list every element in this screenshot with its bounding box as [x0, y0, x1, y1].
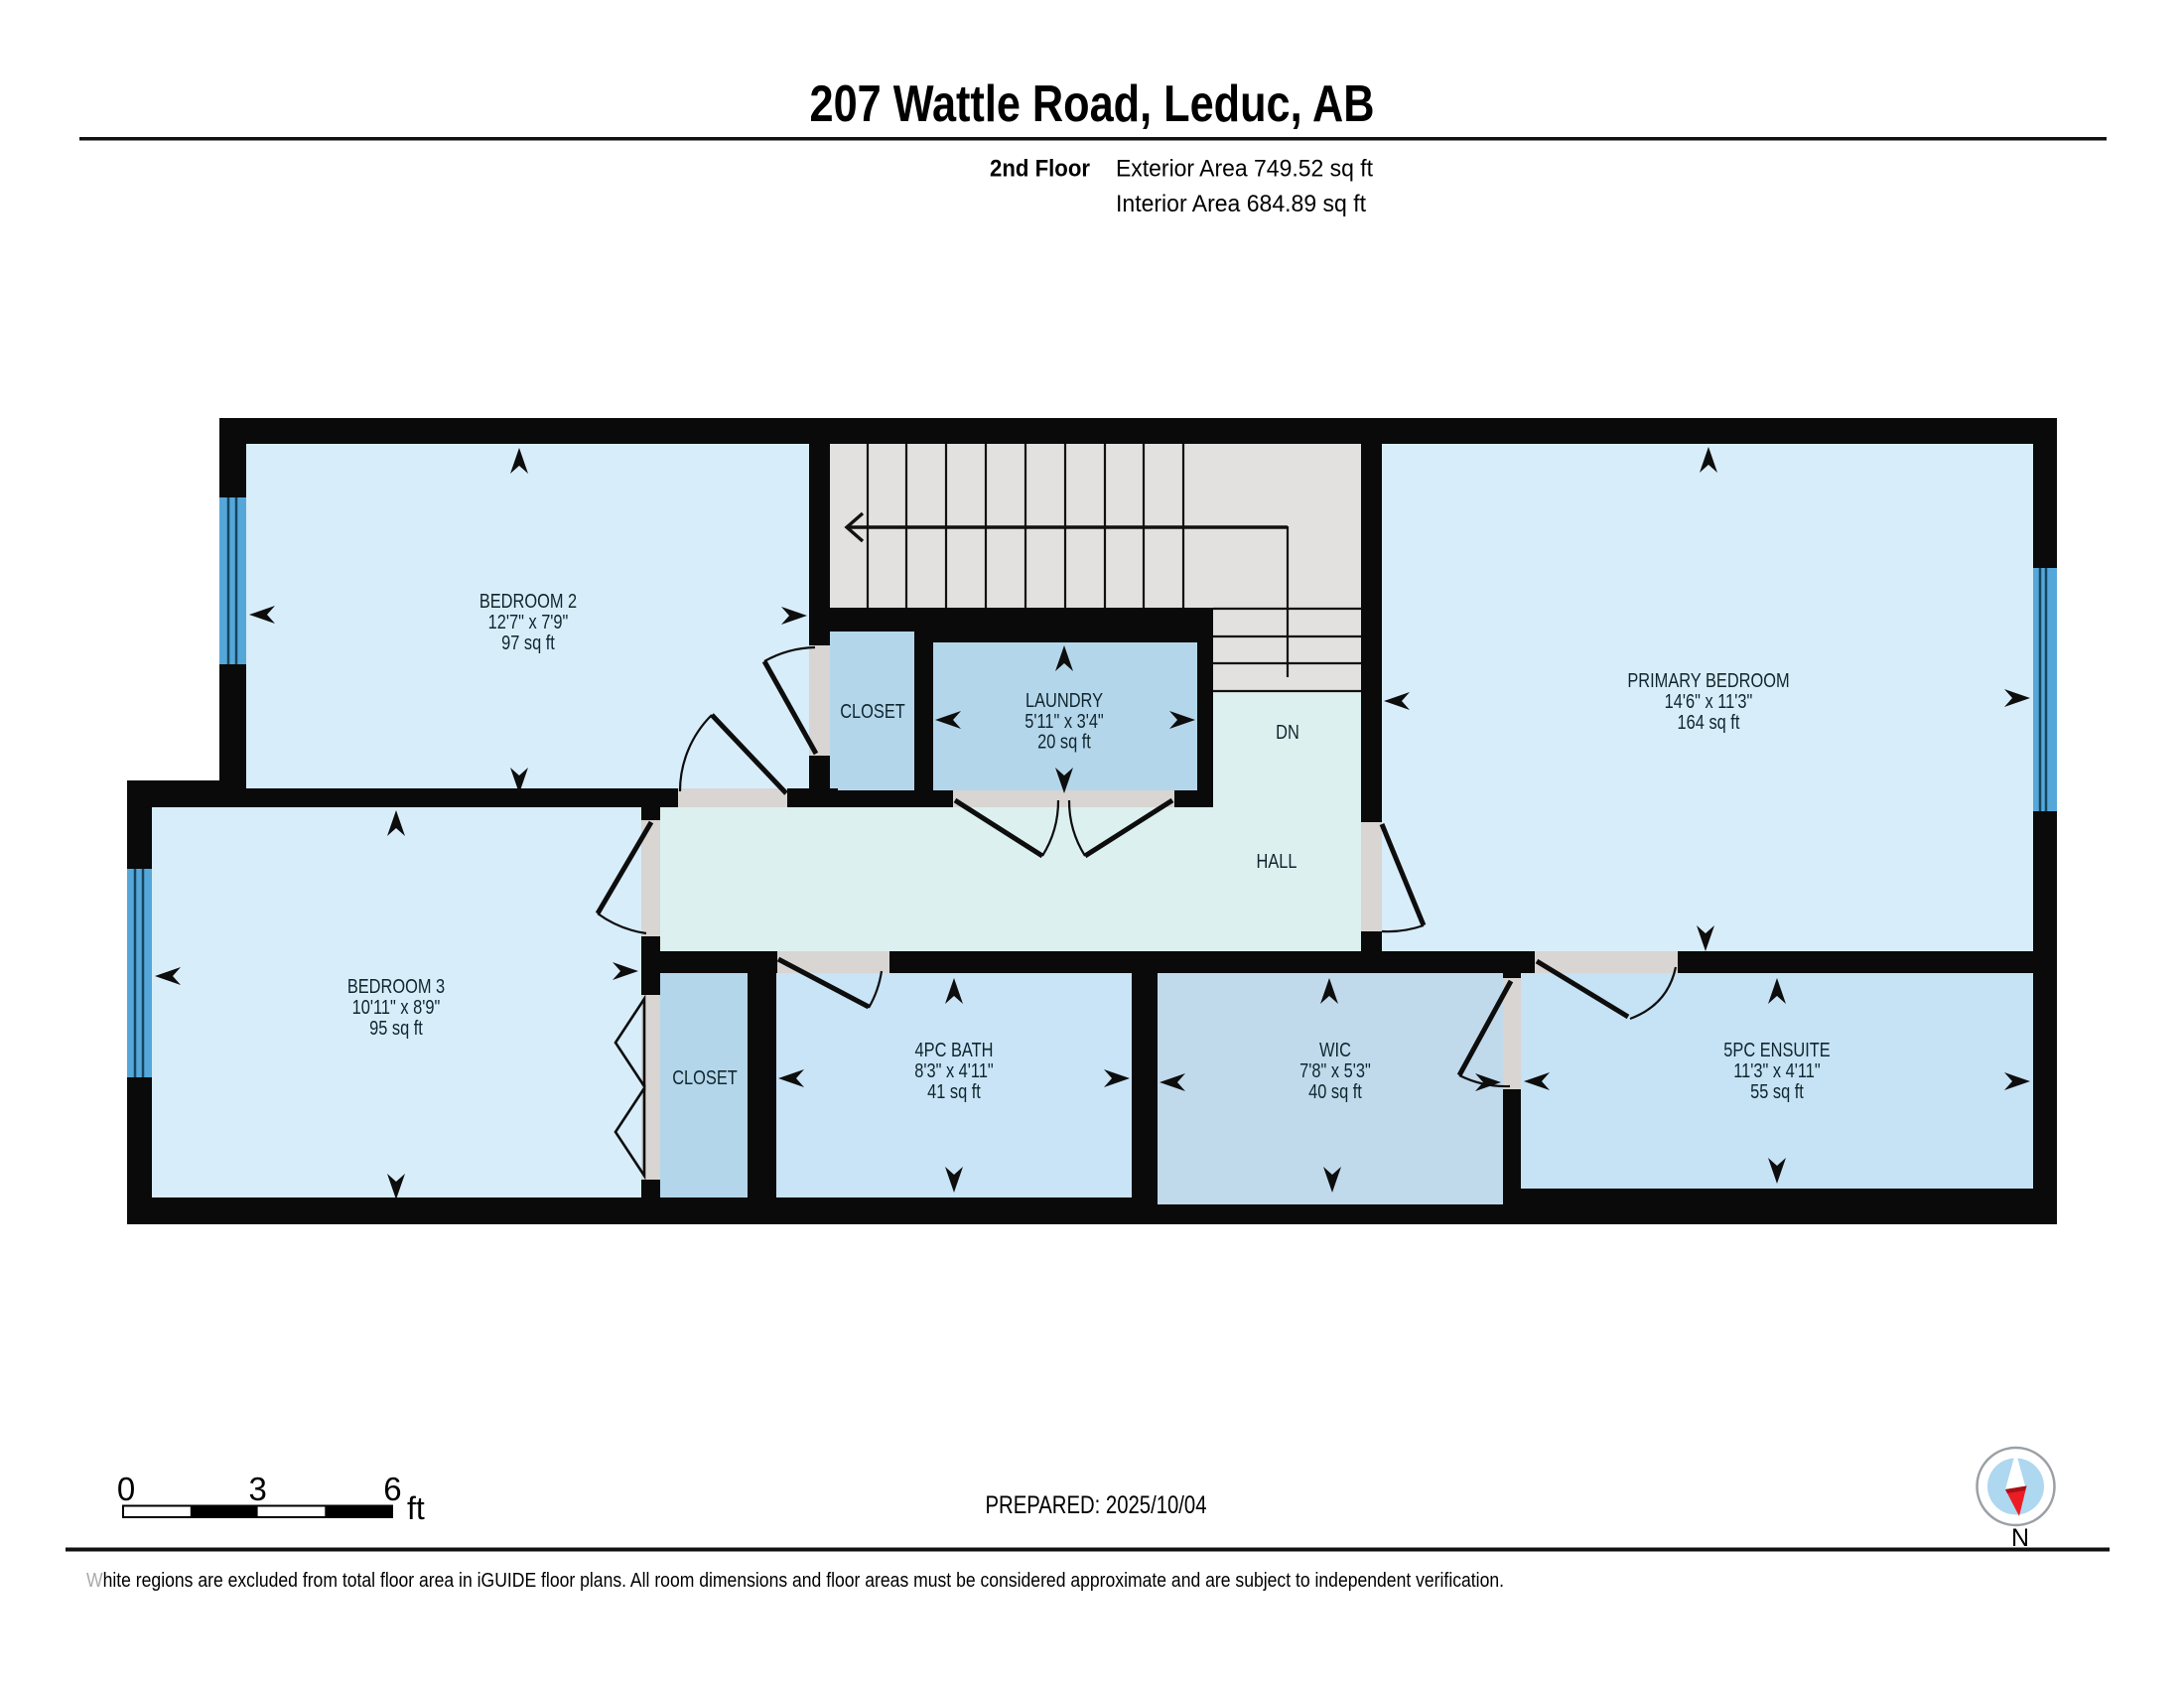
svg-text:CLOSET: CLOSET: [672, 1065, 738, 1088]
svg-text:0: 0: [117, 1471, 135, 1507]
svg-text:14'6" x 11'3": 14'6" x 11'3": [1665, 689, 1753, 712]
svg-text:12'7" x 7'9": 12'7" x 7'9": [488, 610, 569, 633]
svg-text:PRIMARY BEDROOM: PRIMARY BEDROOM: [1627, 668, 1789, 691]
svg-text:164 sq ft: 164 sq ft: [1678, 710, 1741, 733]
svg-text:ft: ft: [407, 1490, 425, 1526]
svg-text:95 sq ft: 95 sq ft: [369, 1016, 423, 1039]
svg-text:40 sq ft: 40 sq ft: [1308, 1079, 1362, 1102]
svg-text:55 sq ft: 55 sq ft: [1750, 1079, 1804, 1102]
svg-text:6: 6: [383, 1471, 401, 1507]
svg-text:2nd Floor: 2nd Floor: [990, 156, 1090, 183]
svg-text:97 sq ft: 97 sq ft: [501, 631, 555, 653]
svg-text:Interior Area 684.89 sq ft: Interior Area 684.89 sq ft: [1116, 191, 1366, 217]
svg-text:PREPARED: 2025/10/04: PREPARED: 2025/10/04: [986, 1491, 1207, 1519]
svg-text:7'8" x 5'3": 7'8" x 5'3": [1299, 1058, 1371, 1081]
svg-text:20 sq ft: 20 sq ft: [1037, 730, 1091, 753]
svg-text:LAUNDRY: LAUNDRY: [1025, 688, 1103, 711]
svg-text:41 sq ft: 41 sq ft: [927, 1079, 981, 1102]
svg-text:8'3" x 4'11": 8'3" x 4'11": [914, 1058, 994, 1081]
svg-text:11'3" x 4'11": 11'3" x 4'11": [1733, 1058, 1820, 1081]
svg-text:White regions are excluded fro: White regions are excluded from total fl…: [86, 1569, 1504, 1592]
svg-text:HALL: HALL: [1257, 849, 1297, 872]
svg-text:WIC: WIC: [1319, 1038, 1351, 1060]
svg-text:BEDROOM 3: BEDROOM 3: [347, 974, 445, 997]
svg-text:CLOSET: CLOSET: [840, 699, 905, 722]
svg-text:DN: DN: [1276, 720, 1299, 743]
svg-text:3: 3: [249, 1471, 267, 1507]
svg-text:4PC BATH: 4PC BATH: [915, 1038, 994, 1060]
svg-text:Exterior Area 749.52 sq ft: Exterior Area 749.52 sq ft: [1116, 156, 1373, 183]
svg-text:207 Wattle Road, Leduc, AB: 207 Wattle Road, Leduc, AB: [810, 75, 1375, 133]
svg-text:5PC ENSUITE: 5PC ENSUITE: [1723, 1038, 1830, 1060]
svg-text:BEDROOM 2: BEDROOM 2: [479, 589, 577, 612]
svg-text:10'11" x 8'9": 10'11" x 8'9": [352, 995, 441, 1018]
